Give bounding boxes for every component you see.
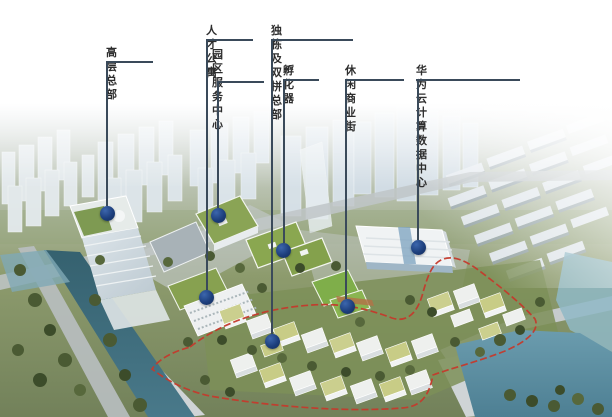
marker-dot bbox=[265, 334, 280, 349]
leader-stem bbox=[206, 39, 208, 290]
leader-underline bbox=[217, 81, 264, 83]
marker-dot bbox=[211, 208, 226, 223]
leader-underline bbox=[271, 39, 353, 41]
aerial-rendering bbox=[0, 0, 612, 417]
marker-dot bbox=[340, 299, 355, 314]
marker-dot bbox=[100, 206, 115, 221]
leader-stem bbox=[271, 39, 273, 334]
leader-stem bbox=[345, 79, 347, 299]
marker-dot bbox=[199, 290, 214, 305]
marker-dot bbox=[276, 243, 291, 258]
aerial-site-plan: 高层总部 人才公寓 园区 服务中心 独栋及双拼总部 孵化器 休闲商业街 华为云计… bbox=[0, 0, 612, 417]
leader-underline bbox=[106, 61, 153, 63]
leader-stem bbox=[417, 79, 419, 240]
leader-stem bbox=[283, 79, 285, 243]
leader-stem bbox=[106, 61, 108, 206]
leader-underline bbox=[283, 79, 319, 81]
marker-dot bbox=[411, 240, 426, 255]
leader-stem bbox=[217, 81, 219, 208]
leader-underline bbox=[345, 79, 404, 81]
leader-underline bbox=[206, 39, 253, 41]
leader-underline bbox=[416, 79, 520, 81]
